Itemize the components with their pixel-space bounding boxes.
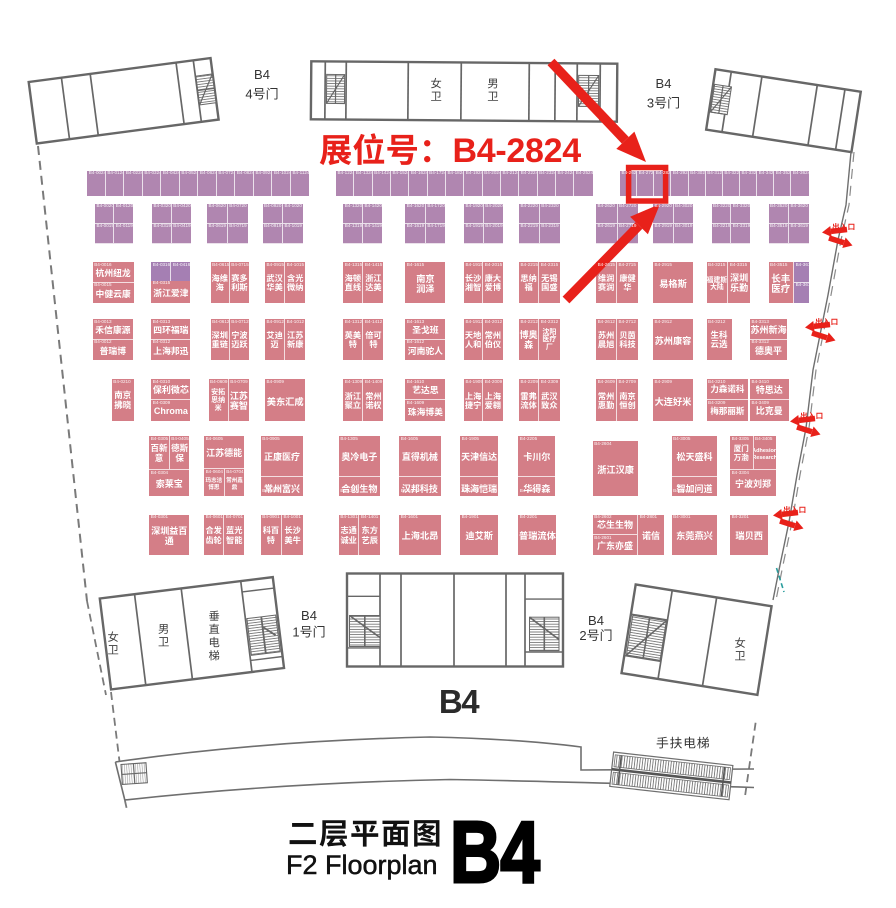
svg-text:F2 Floorplan: F2 Floorplan bbox=[286, 850, 438, 880]
svg-text:B4-2824: B4-2824 bbox=[453, 132, 582, 170]
